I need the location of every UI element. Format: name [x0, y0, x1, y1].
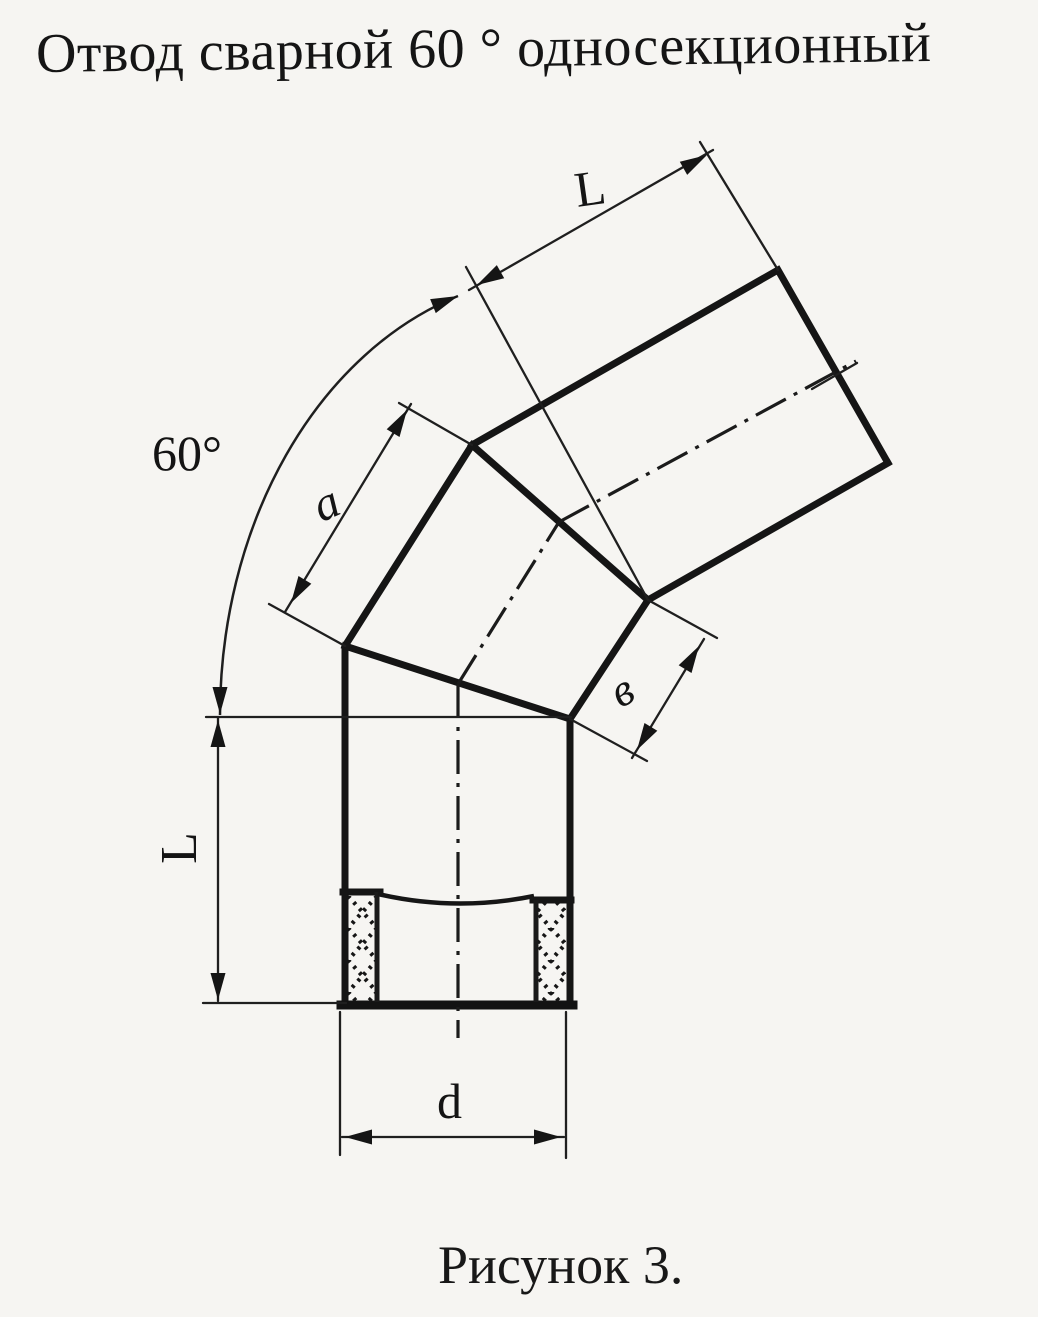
- v-extension-lower: [570, 719, 647, 761]
- angle-dimension-60: 60°: [152, 289, 461, 715]
- upper-pipe-centerline: [559, 361, 856, 522]
- arc-arrowhead-bottom: [213, 687, 228, 714]
- label-outer-side-a: a: [304, 474, 347, 532]
- dimension-d-diameter: d: [340, 1012, 566, 1158]
- label-inner-side-v: в: [601, 663, 643, 717]
- socket-hatch-right: [533, 900, 571, 1003]
- elbow-outer-outline: [345, 270, 888, 1004]
- v-arrowhead-lower: [631, 723, 658, 754]
- L-left-arrowhead-top: [211, 720, 226, 747]
- middle-section-centerline: [458, 522, 559, 684]
- label-length-left: L: [151, 832, 208, 864]
- pipe-elbow-body: [341, 270, 888, 1005]
- a-arrowhead-upper: [387, 406, 414, 437]
- d-arrowhead-right: [534, 1130, 561, 1145]
- pipe-bore-break-line: [378, 894, 534, 904]
- arc-arrowhead-top: [430, 289, 461, 313]
- L-top-extension-right: [700, 142, 778, 270]
- v-arrowhead-upper: [679, 642, 706, 673]
- elbow-technical-drawing: 60° L a в L: [0, 0, 1038, 1317]
- socket-hatch-left: [343, 892, 380, 1003]
- a-arrowhead-lower: [285, 576, 312, 607]
- v-extension-upper: [648, 600, 717, 638]
- a-extension-lower: [269, 604, 345, 646]
- figure-caption: Рисунок 3.: [438, 1234, 758, 1296]
- d-arrowhead-left: [345, 1130, 372, 1145]
- a-extension-upper: [399, 403, 472, 445]
- L-left-arrowhead-bottom: [211, 973, 226, 1000]
- label-angle-60: 60°: [152, 425, 222, 481]
- label-length-top: L: [571, 158, 609, 218]
- label-diameter-d: d: [437, 1073, 462, 1129]
- dimension-L-top: L: [466, 142, 778, 600]
